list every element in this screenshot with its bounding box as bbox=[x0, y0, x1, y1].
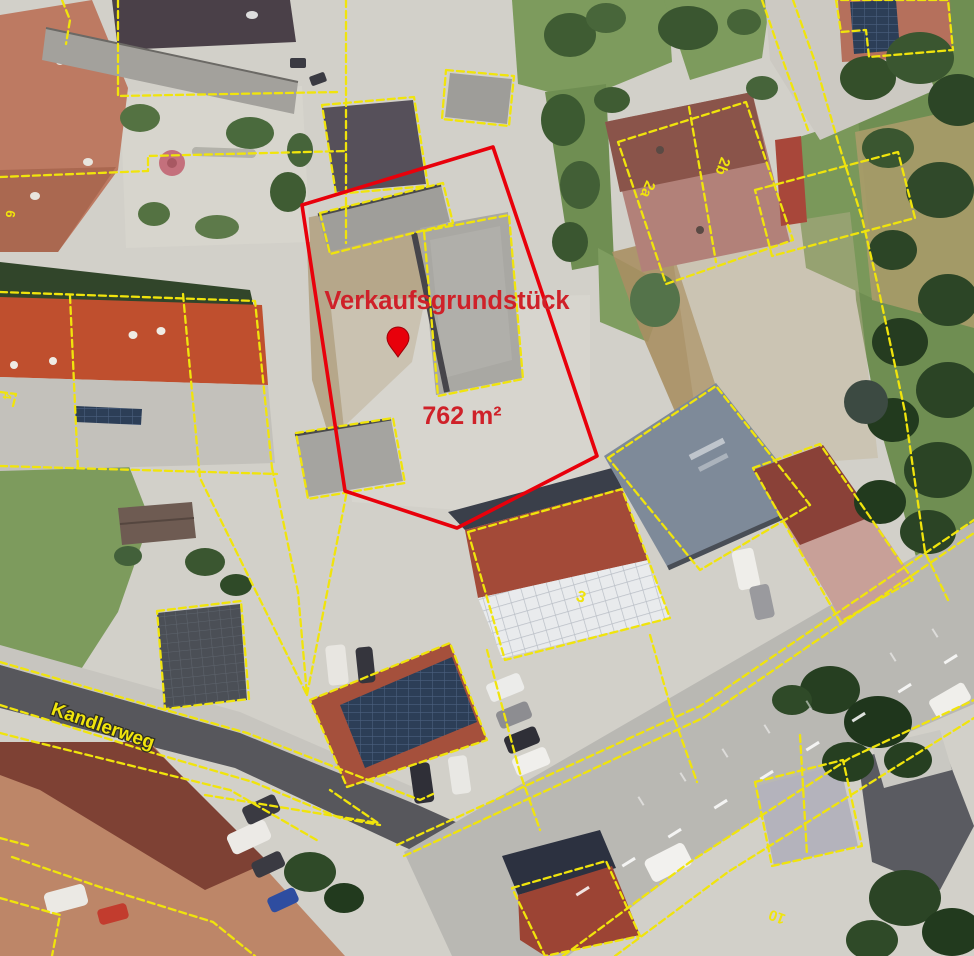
map-canvas[interactable]: 6 4 2a 2b 3 10 Kandlerweg Verkaufsgrunds… bbox=[0, 0, 974, 956]
aerial-photo: 6 4 2a 2b 3 10 Kandlerweg Verkaufsgrunds… bbox=[0, 0, 974, 956]
building-small-gray bbox=[445, 73, 512, 124]
sale-parcel-area-label: 762 m² bbox=[422, 402, 501, 430]
sale-parcel-label: Verkaufsgrundstück bbox=[324, 287, 570, 315]
building-dark-roof bbox=[112, 0, 296, 50]
building-west bbox=[0, 297, 268, 385]
building-dark-hall bbox=[322, 100, 426, 192]
building-solar-garage bbox=[157, 604, 247, 709]
